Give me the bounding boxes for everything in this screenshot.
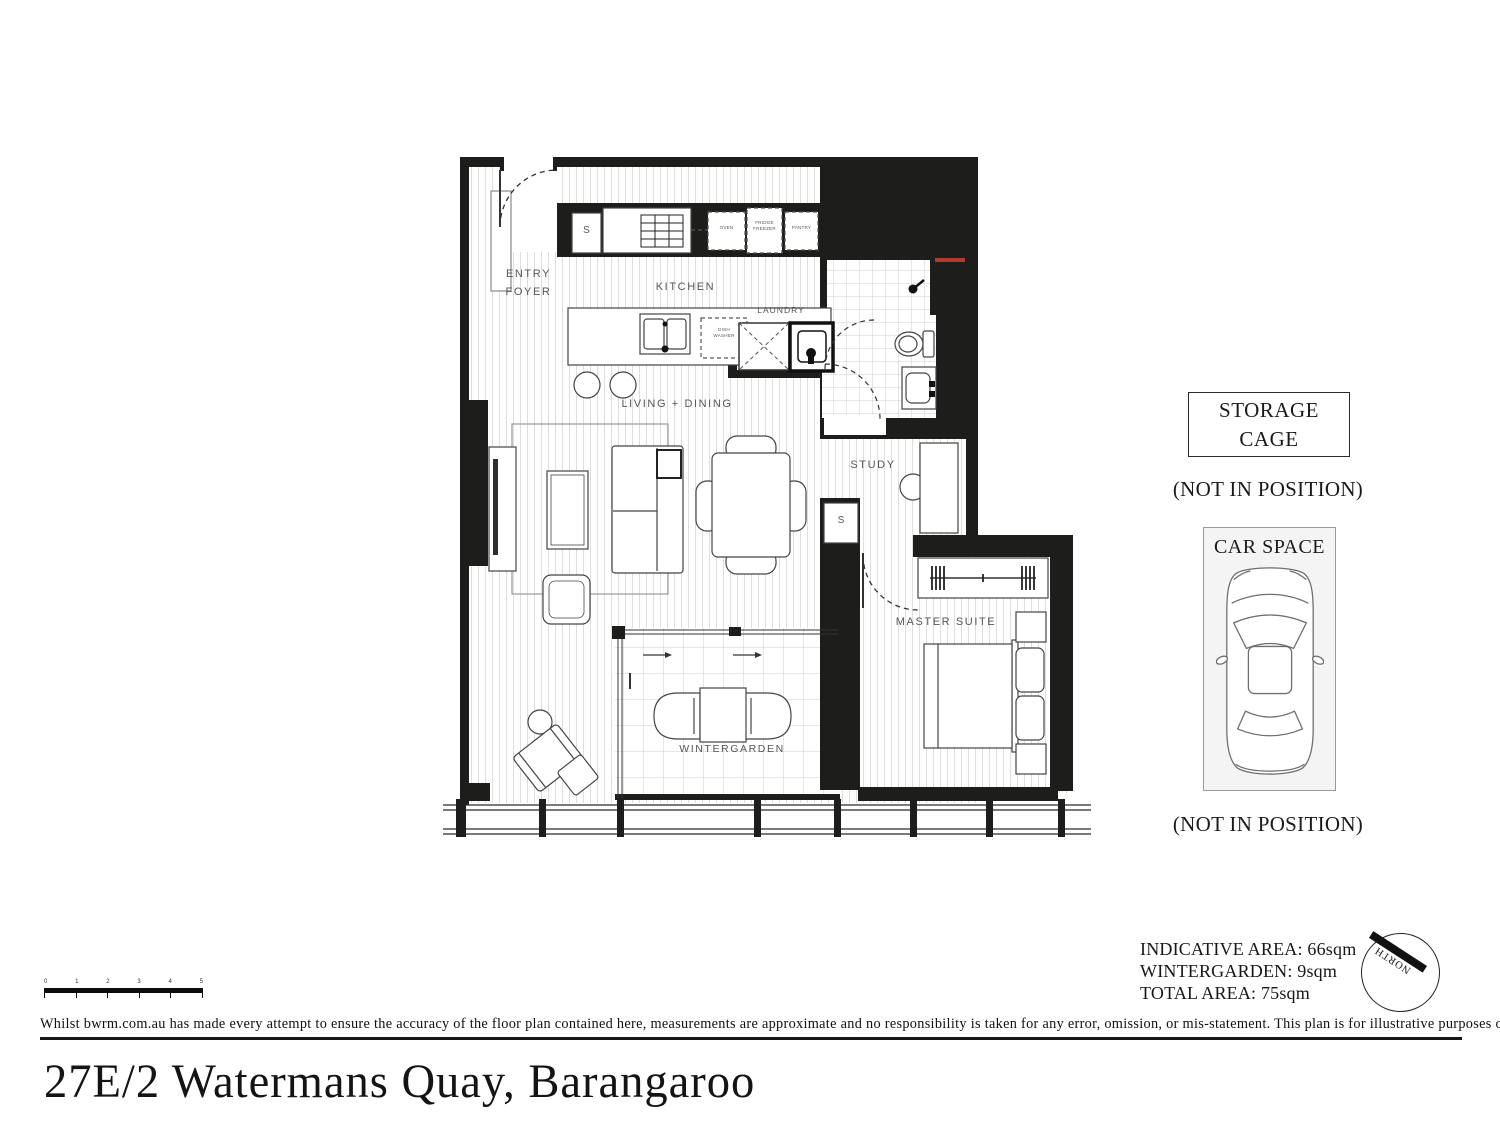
oven bbox=[708, 212, 745, 250]
storage-cage-note: (NOT IN POSITION) bbox=[1156, 477, 1380, 502]
stool bbox=[574, 372, 600, 398]
footer-rule bbox=[40, 1037, 1462, 1040]
label-laundry: LAUNDRY bbox=[732, 304, 830, 318]
vanity bbox=[902, 367, 936, 409]
pillow bbox=[1016, 696, 1044, 740]
scale-tick-label: 0 bbox=[44, 979, 47, 985]
indicative-area: INDICATIVE AREA: 66sqm bbox=[1140, 938, 1356, 960]
bed bbox=[924, 644, 1012, 748]
wintergarden-table bbox=[700, 688, 746, 742]
bedside-table bbox=[1016, 744, 1046, 774]
pillow bbox=[1016, 648, 1044, 692]
car-space-note: (NOT IN POSITION) bbox=[1156, 812, 1380, 837]
scale-numbers: 0 1 2 3 4 5 bbox=[44, 979, 203, 985]
bedside-table bbox=[1016, 612, 1046, 642]
total-area: TOTAL AREA: 75sqm bbox=[1140, 982, 1356, 1004]
label-kitchen: KITCHEN bbox=[633, 279, 738, 297]
balcony-rail bbox=[443, 799, 1091, 837]
label-oven: OVEN bbox=[708, 225, 745, 231]
tv bbox=[493, 459, 498, 555]
scale-tick-label: 5 bbox=[200, 979, 203, 985]
label-living-dining: LIVING + DINING bbox=[593, 396, 761, 414]
car-space-box: CAR SPACE bbox=[1203, 527, 1336, 791]
dining-furniture bbox=[696, 436, 806, 574]
area-summary: INDICATIVE AREA: 66sqm WINTERGARDEN: 9sq… bbox=[1140, 938, 1356, 1004]
coffee-table bbox=[547, 471, 588, 549]
floor-plan-page: ENTRY FOYER KITCHEN LAUNDRY LIVING + DIN… bbox=[0, 0, 1500, 1125]
wintergarden-area: WINTERGARDEN: 9sqm bbox=[1140, 960, 1356, 982]
study-desk bbox=[920, 443, 958, 533]
scale-bar: 0 1 2 3 4 5 bbox=[44, 979, 203, 998]
label-fridge: FRIDGE FREEZER bbox=[747, 220, 782, 231]
label-cupboard-s: S bbox=[572, 225, 601, 236]
label-study: STUDY bbox=[824, 457, 922, 475]
label-dishwasher: DISH WASHER bbox=[701, 327, 747, 338]
label-cupboard-s: S bbox=[824, 515, 858, 526]
disclaimer-text: Whilst bwrm.com.au has made every attemp… bbox=[40, 1016, 1462, 1033]
toilet bbox=[895, 331, 934, 357]
laundry-fixtures bbox=[739, 323, 833, 371]
floor-plan: ENTRY FOYER KITCHEN LAUNDRY LIVING + DIN… bbox=[443, 153, 1093, 848]
sink bbox=[640, 314, 690, 354]
label-pantry: PANTRY bbox=[785, 225, 818, 231]
scale-bar-ticks bbox=[44, 993, 203, 998]
car-top-view-icon bbox=[1216, 561, 1324, 779]
wintergarden-chair bbox=[745, 693, 791, 739]
storage-cage-box: STORAGE CAGE bbox=[1188, 392, 1350, 457]
red-mark bbox=[935, 258, 965, 262]
page-title: 27E/2 Watermans Quay, Barangaroo bbox=[44, 1054, 755, 1109]
ottoman bbox=[543, 575, 590, 624]
label-master-suite: MASTER SUITE bbox=[873, 614, 1019, 632]
pantry bbox=[785, 212, 818, 250]
north-compass-icon: NORTH bbox=[1361, 933, 1440, 1012]
stool bbox=[610, 372, 636, 398]
dining-table bbox=[712, 453, 790, 557]
label-wintergarden: WINTERGARDEN bbox=[649, 741, 815, 758]
scale-tick-label: 4 bbox=[169, 979, 172, 985]
scale-tick-label: 2 bbox=[106, 979, 109, 985]
north-pointer: NORTH bbox=[1363, 931, 1427, 982]
scale-tick-label: 1 bbox=[75, 979, 78, 985]
wintergarden-chair bbox=[654, 693, 700, 739]
scale-tick-label: 3 bbox=[137, 979, 140, 985]
label-entry-foyer: ENTRY FOYER bbox=[481, 266, 576, 301]
sofa bbox=[612, 446, 683, 573]
car-space-label: CAR SPACE bbox=[1204, 536, 1335, 559]
